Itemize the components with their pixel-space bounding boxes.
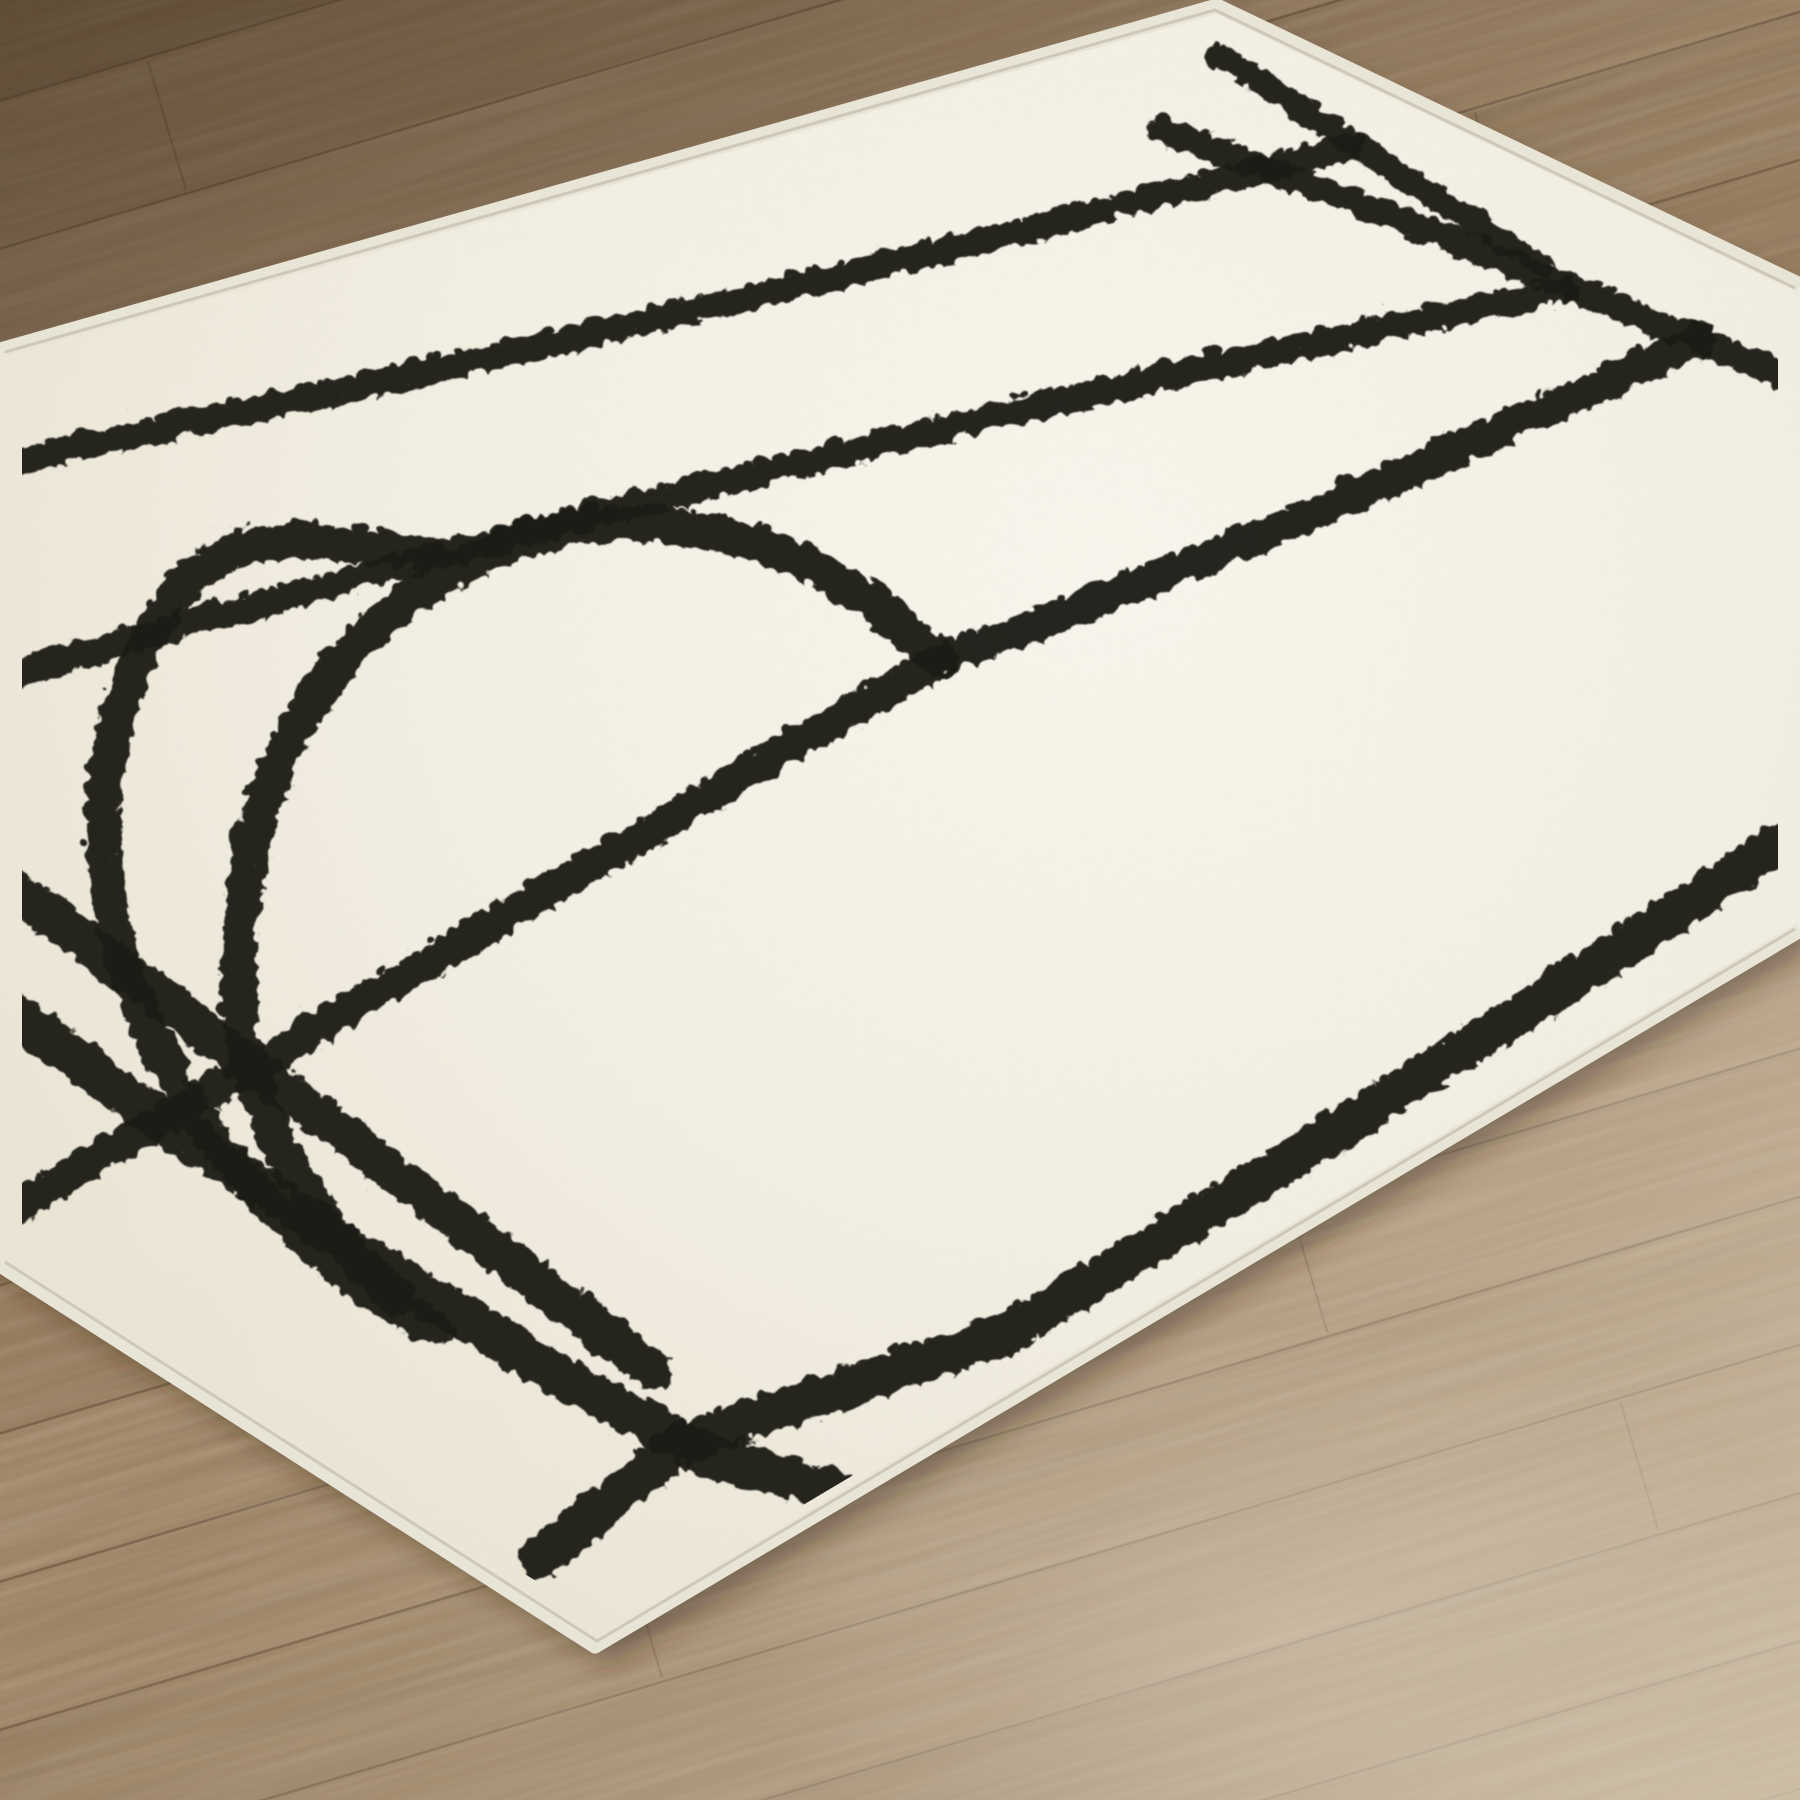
photo-stage: [0, 0, 1800, 1800]
rug-on-wood-floor-photo: [0, 0, 1800, 1800]
